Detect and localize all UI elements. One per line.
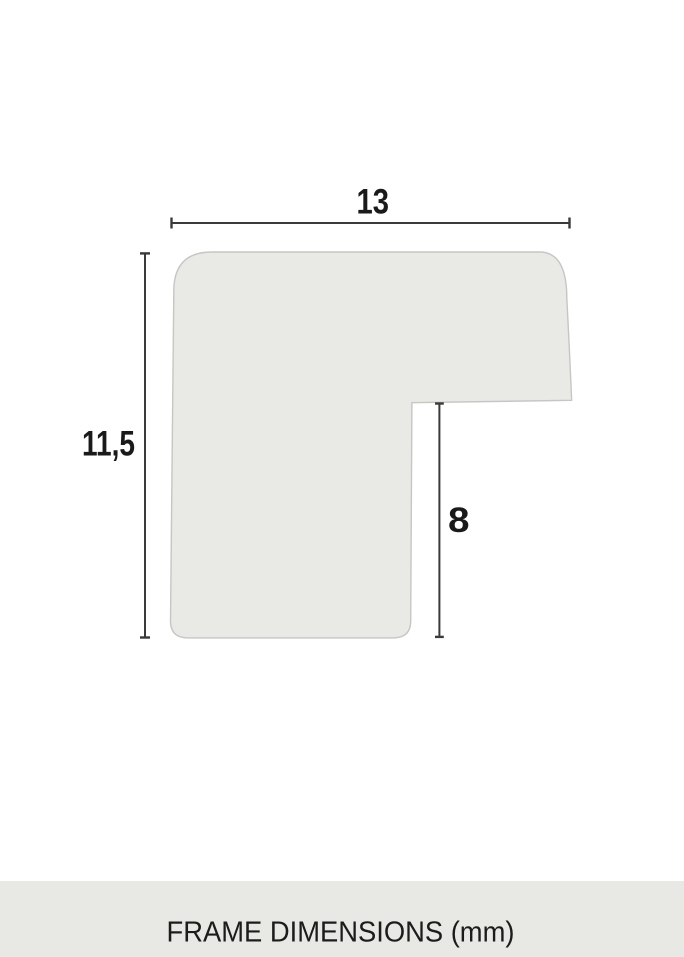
svg-text:11,5: 11,5	[82, 425, 135, 464]
svg-text:FRAME DIMENSIONS (mm): FRAME DIMENSIONS (mm)	[167, 917, 515, 949]
svg-text:13: 13	[357, 183, 390, 222]
svg-text:8: 8	[448, 501, 470, 540]
